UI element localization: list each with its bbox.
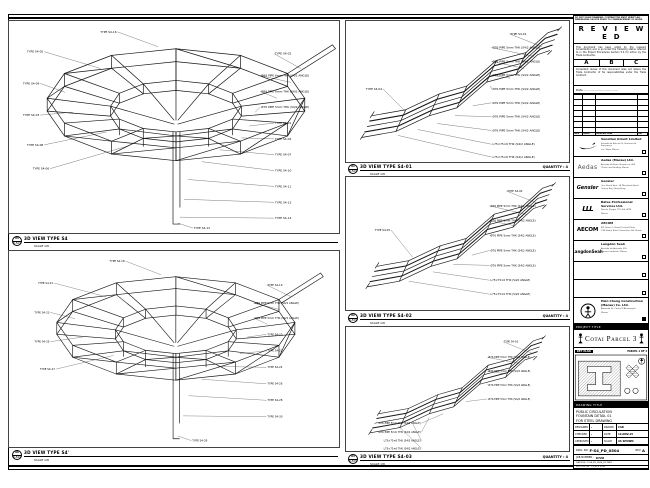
annotation-label: TYPE S4-04 <box>274 137 291 141</box>
view-a-title: 3D VIEW TYPE S4 <box>24 236 68 241</box>
view-e-titlebar: 03 S-501 3D VIEW TYPE S4-03 QUANTITY : 4… <box>348 454 570 466</box>
annotation-label: Ø76 PIPE 5mm THK (S4/2 ANGLE) <box>488 396 530 401</box>
contractor-checkbox-filled <box>642 317 646 321</box>
approved-label: APPROVED <box>574 438 590 445</box>
annotation-label: TYPE S4-27 <box>40 367 55 371</box>
leader-line <box>220 150 274 155</box>
title-block: DO NOT SCALE DRAWING. CONTRACTOR MUST VE… <box>573 15 649 469</box>
viewport-3d-type-s4-prime: TYPE S4-18TYPE S4-21TYPE S4-23TYPE S4-25… <box>8 250 340 448</box>
annotation-label: TYPE S4-14 <box>274 216 291 220</box>
annotation-label: Ø76 PIPE 5mm THK (S4/2 ANGLE) <box>493 86 541 91</box>
annotation-label: Ø76 PIPE 5mm THK (S4/2 ANGLE) <box>493 114 541 119</box>
leader-line <box>183 416 266 417</box>
rev-col-header: REV <box>574 133 583 135</box>
view-e-scale: SCALE 1/8 <box>360 462 570 466</box>
annotation-label: L75×75×6 THK (S4/2 ANGLE) <box>491 292 531 296</box>
annotation-label: TYPE S4-02 <box>274 52 291 56</box>
annotation-label: TYPE S4-10 <box>274 169 291 173</box>
annotation-label: Ø76 PIPE 5mm THK (S4/2 ANGLE) <box>379 429 421 434</box>
annotation-label: Ø76 PIPE 5mm THK (S4/2 ANGLE) <box>493 127 541 132</box>
company-address-1: 8/F Tower 2, Grand Central Plaza <box>601 227 647 230</box>
langdon-seah-logo-icon: LangdonSeah <box>574 249 603 254</box>
bubble-sheet-ref: S-501 <box>349 460 357 464</box>
int-col-header: INT <box>638 133 648 135</box>
view-c-quantity: QUANTITY : 4 <box>543 165 570 169</box>
gondola-icon <box>578 142 598 151</box>
leader-line <box>466 399 488 402</box>
general-note: DO NOT SCALE DRAWING. CONTRACTOR MUST VE… <box>574 16 648 24</box>
leader-line <box>473 103 492 106</box>
company-address-2: Macau Landmark, Macau <box>601 251 647 254</box>
annotation-label: Ø76 PIPE 5mm THK (S4/2 ANGLE) <box>255 315 299 320</box>
annotation-label: TYPE S4-26 <box>267 382 282 386</box>
company-checkbox <box>642 171 646 175</box>
job-number-label: JOB NUMBER : <box>576 456 594 459</box>
leader-line <box>184 199 274 202</box>
view-b-titlebar: 06 S-501 3D VIEW TYPE S4' SCALE 1/8 <box>12 450 338 462</box>
annotation-label: TYPE S4-05 <box>26 50 43 54</box>
leader-line <box>422 414 444 424</box>
leader-line <box>418 129 492 144</box>
reviewed-paragraph-2: Consultant review of this document does … <box>574 67 648 79</box>
annotation-label: TYPE S4-06 <box>32 167 49 171</box>
annotation-label: TYPE S4-16 <box>99 30 116 34</box>
annotation-label: L75×75×6 THK (S4/2 ANGLE) <box>491 278 531 282</box>
company-checkbox <box>642 273 646 277</box>
annotation-label: L75×75×6 THK (S4/2 ANGLE) <box>493 142 535 146</box>
annotation-label: Ø89 PIPE 6mm THK (S4/2 ANGLE) <box>255 300 299 305</box>
annotation-label: TYPE S4-11 <box>274 184 291 188</box>
leader-line <box>44 132 106 145</box>
company-name: Bates Professional Services Ltd. <box>601 201 647 208</box>
annotation-label: TYPE S4-30 <box>267 415 282 419</box>
drawn-label: DRAWN <box>603 424 617 431</box>
company-checkbox <box>642 234 646 238</box>
leader-line <box>178 223 193 228</box>
view-b-detail-bubble: 06 S-501 <box>12 450 22 460</box>
rev-value: A <box>642 448 646 453</box>
annotation-label: TYPE S4-13 <box>274 200 291 204</box>
bubble-sheet-ref: S-501 <box>13 456 21 460</box>
annotation-label: TYPE S4-19 <box>267 283 282 287</box>
bates-logo-icon: LLL <box>582 205 592 213</box>
leader-line <box>453 264 489 265</box>
leader-line <box>249 123 274 126</box>
drawing-title-section: DRAWING TITLE PUBLIC CIRCULATION FOUNTAI… <box>574 402 648 424</box>
status-c: C <box>623 60 648 66</box>
view-a-drawing: TYPE S4-16TYPE S4-05TYPE S4-09TYPE S4-03… <box>9 21 339 233</box>
leader-line <box>56 355 114 369</box>
parcel-note: PARCEL 1 OF 3 <box>627 350 647 353</box>
drawing-sheet: TYPE S4-16TYPE S4-05TYPE S4-09TYPE S4-03… <box>0 0 650 488</box>
checked-label: CHECKED <box>574 431 590 438</box>
designed-label: DESIGNED <box>574 424 590 431</box>
dwg-no-label: DWG. NO. <box>576 449 588 452</box>
company-address-2: China Law Building, Macau <box>601 167 647 170</box>
description-col-header: DESCRIPTION <box>596 133 638 135</box>
drawn-value: CAD <box>617 424 648 431</box>
view-b-title: 3D VIEW TYPE S4' <box>24 450 69 455</box>
bubble-sheet-ref: S-501 <box>13 242 21 246</box>
reviewed-stamp: R E V I E W E D This document has been n… <box>574 24 648 94</box>
leader-line <box>125 261 161 275</box>
annotation-label: TYPE S4-28 <box>267 398 282 402</box>
company-name: AECOM <box>601 222 647 226</box>
view-c-drawing: TYPE S4-01Ø76 PIPE 5mm THK (S4/2 ANGLE)Ø… <box>346 21 569 162</box>
leader-line <box>398 135 492 157</box>
contractor-address-1: Alameda Dr. Carlos D'Assumpção <box>601 308 647 311</box>
signoff-grid: DESIGNED - DRAWN CAD CHECKED - DATE 12-N… <box>574 424 648 446</box>
annotation-label: TYPE S4-04 <box>365 87 382 91</box>
annotation-label: TYPE S4-18 <box>110 259 125 263</box>
sheet-border-top-outer <box>8 14 649 15</box>
company-langdon-seah: LangdonSeah Langdon Seah Avenida da Amiz… <box>574 241 648 262</box>
emblem-icon <box>580 303 596 319</box>
company-address-1: Avenida da Praia Grande no. 409 <box>601 164 647 167</box>
view-d-scale: SCALE 1/8 <box>360 321 570 325</box>
reviewed-date-line: Date : .................................… <box>574 85 648 93</box>
company-address-2: Macau <box>601 213 647 216</box>
annotation-label: Ø76 PIPE 5mm THK (S4/2 ANGLE) <box>261 104 309 109</box>
viewport-3d-type-s4: TYPE S4-16TYPE S4-05TYPE S4-09TYPE S4-03… <box>8 20 340 234</box>
annotation-label: TYPE S4-24 <box>267 365 282 369</box>
company-name: Langdon Seah <box>601 243 647 247</box>
annotation-label: Ø76 PIPE 5mm THK (S4/2 ANGLE) <box>491 247 536 252</box>
drawing-number-row: DWG. NO. F-S4_PD_0504 REV. A <box>574 446 648 455</box>
sheet-border-bottom-outer <box>8 469 649 470</box>
annotation-label: Ø76 PIPE 5mm THK (S4/2 ANGLE) <box>491 262 536 267</box>
date-col-header: DATE <box>583 133 596 135</box>
job-number-value: 0720 <box>596 456 604 460</box>
status-b: B <box>599 60 624 66</box>
annotation-label: TYPE S4-03 <box>504 340 519 344</box>
company-address-2: 138 Shatin Rural Committee Rd, Shatin <box>601 230 647 233</box>
annotation-label: TYPE S4-07 <box>274 153 291 157</box>
company-aedas: Aedas Aedas (Macau) Ltd. Avenida da Prai… <box>574 157 648 178</box>
company-name: Venetian Orient Limited <box>601 138 647 142</box>
viewport-3d-type-s4-01: TYPE S4-01Ø76 PIPE 5mm THK (S4/2 ANGLE)Ø… <box>345 20 570 163</box>
key-plan-label: KEY PLAN <box>575 350 593 353</box>
annotation-label: TYPE S4-22 <box>267 349 282 353</box>
leader-line <box>240 351 267 354</box>
venetian-logo-icon <box>575 137 600 155</box>
company-address-1: Estrada da Baía de N. Senhora da Esperan… <box>601 143 647 148</box>
viewport-3d-type-s4-03: TYPE S4-03Ø76 PIPE 5mm THK (S4/2 ANGLE)Ø… <box>345 326 570 452</box>
annotation-label: TYPE S4-12 <box>193 226 210 230</box>
rev-label: REV. <box>636 449 642 452</box>
project-title-text: Cotai Parcel 3 <box>585 335 637 343</box>
drawing-title-line-3: FOR STEEL DRAWING <box>576 419 646 424</box>
company-checkbox <box>642 291 646 295</box>
reviewed-paragraph-1: This document has been noted by the rele… <box>574 44 648 59</box>
annotation-label: L75×75×6 THK (S4/2 ANGLE) <box>384 438 421 442</box>
revision-table-header: REV DATE DESCRIPTION INT <box>574 132 648 135</box>
key-plan-section: KEY PLAN PARCEL 1 OF 3 <box>574 348 648 402</box>
leader-line <box>491 86 492 89</box>
annotation-label: TYPE S4-25 <box>34 340 49 344</box>
contractor-address-2: Macau <box>601 312 647 315</box>
consultant-empty-cell-1 <box>574 262 648 280</box>
company-checkbox <box>642 192 646 196</box>
annotation-label: L75×75×6 THK (S4/2 ANGLE) <box>493 155 535 159</box>
ornament-icon <box>577 332 584 345</box>
annotation-label: TYPE S4-03 <box>22 113 39 117</box>
annotation-label: TYPE S4-09 <box>22 81 39 85</box>
leader-line <box>274 54 301 69</box>
leader-line <box>391 230 412 257</box>
date-value: 12-NOV-15 <box>617 431 648 438</box>
view-e-detail-bubble: 03 S-501 <box>348 454 358 464</box>
leader-line <box>201 379 266 384</box>
company-address-2: s/n, Taipa, Macau <box>601 149 647 152</box>
company-venetian: Venetian Orient Limited Estrada da Baía … <box>574 136 648 157</box>
leader-line <box>487 384 488 385</box>
reviewed-title: R E V I E W E D <box>574 24 648 44</box>
approved-value: - <box>590 438 603 445</box>
view-e-title: 3D VIEW TYPE S4-03 <box>360 454 412 459</box>
annotation-label: Ø76 PIPE 5mm THK (S4/2 ANGLE) <box>491 233 536 238</box>
view-a-titlebar: 05 S-501 3D VIEW TYPE S4 SCALE 1/8 <box>12 236 338 248</box>
annotation-label: TYPE S4-08 <box>26 143 43 147</box>
leader-line <box>383 89 406 112</box>
annotation-label: Ø76 PIPE 5mm THK (S4/2 ANGLE) <box>493 100 541 105</box>
leader-line <box>218 366 267 367</box>
view-e-drawing: TYPE S4-03Ø76 PIPE 5mm THK (S4/2 ANGLE)Ø… <box>346 327 569 451</box>
company-aecom: AECOM AECOM 8/F Tower 2, Grand Central P… <box>574 220 648 241</box>
company-checkbox <box>642 150 646 154</box>
leader-line <box>433 272 490 280</box>
view-a-detail-bubble: 05 S-501 <box>12 236 22 246</box>
view-d-detail-bubble: 02 S-501 <box>348 313 358 323</box>
annotation-label: TYPE S4-05 <box>374 228 391 232</box>
viewport-3d-type-s4-02: TYPE S4-02Ø76 PIPE 5mm THK (S4/2 ANGLE)Ø… <box>345 176 570 311</box>
bubble-sheet-ref: S-501 <box>349 319 357 323</box>
scale-label: SCALE <box>603 438 617 445</box>
view-c-scale: SCALE 1/8 <box>360 172 570 176</box>
leader-line <box>118 32 159 47</box>
status-a: A <box>574 60 599 66</box>
view-c-detail-bubble: 01 S-501 <box>348 164 358 174</box>
annotation-label: TYPE S4-21 <box>38 281 53 285</box>
annotation-label: Ø76 PIPE 5mm THK (S4/2 ANGLE) <box>493 58 541 63</box>
view-d-title: 3D VIEW TYPE S4-02 <box>360 313 412 318</box>
contractor-block: Hsin Chong Construction (Macau) Co. Ltd.… <box>574 298 648 324</box>
view-a-scale: SCALE 1/8 <box>24 244 338 248</box>
leader-line <box>180 217 274 218</box>
leader-line <box>409 281 490 294</box>
annotation-label: TYPE S4-29 <box>192 439 207 443</box>
project-title-banner: Cotai Parcel 3 <box>574 330 648 348</box>
company-gensler: Gensler Gensler One Island East, 18 West… <box>574 178 648 199</box>
leader-line <box>50 337 82 342</box>
plot-date-row: PLOTTED ON : 12 NOV 2015 <box>574 466 648 468</box>
contractor-name-2: (Macau) Co. Ltd. <box>601 304 647 308</box>
annotation-label: TYPE S4-23 <box>34 310 49 314</box>
annotation-label: L75×75×6 THK (S4/2 ANGLE) <box>384 446 421 450</box>
company-name: Gensler <box>601 180 647 184</box>
leader-line <box>398 426 421 449</box>
leader-line <box>50 146 128 169</box>
company-address-1: Avenida da Amizade 555 <box>601 248 647 251</box>
leader-line <box>472 250 490 255</box>
leader-line <box>189 396 267 401</box>
dwg-no-value: F-S4_PD_0504 <box>589 448 634 453</box>
annotation-label: Ø76 PIPE 5mm THK (S4/2 ANGLE) <box>493 45 541 50</box>
company-address-2: Quarry Bay, Hong Kong <box>601 188 647 191</box>
aedas-logo-icon: Aedas <box>578 164 598 171</box>
revision-table: REV DATE DESCRIPTION INT <box>574 94 648 136</box>
view-b-drawing: TYPE S4-18TYPE S4-21TYPE S4-23TYPE S4-25… <box>9 251 339 447</box>
annotation-label: TYPE S4-02 <box>506 189 523 193</box>
gensler-logo-icon: Gensler <box>577 185 599 191</box>
key-plan-map <box>574 354 648 401</box>
company-address-1: One Island East, 18 Westlands Road <box>601 185 647 188</box>
scale-value: AS SHOWN <box>617 438 648 445</box>
view-e-quantity: QUANTITY : 4 <box>543 455 570 459</box>
date-label: DATE <box>603 431 617 438</box>
leader-line <box>202 162 274 171</box>
leader-line <box>178 436 192 441</box>
leader-line <box>188 180 274 187</box>
leader-line <box>422 417 430 432</box>
leader-line <box>40 112 73 115</box>
sheet-border-top-inner <box>8 17 649 19</box>
view-d-drawing: TYPE S4-02Ø76 PIPE 5mm THK (S4/2 ANGLE)Ø… <box>346 177 569 310</box>
company-address-1: Rua de Xangai 175, Edf. ACM <box>601 209 647 212</box>
view-d-quantity: QUANTITY : 4 <box>543 314 570 318</box>
bubble-sheet-ref: S-501 <box>349 170 357 174</box>
leader-line <box>44 52 100 69</box>
annotation-label: TYPE S4-20 <box>267 332 282 336</box>
contractor-logo-icon <box>575 299 600 322</box>
aecom-logo-icon: AECOM <box>577 227 598 233</box>
company-checkbox <box>642 255 646 259</box>
ornament-icon <box>638 332 645 345</box>
view-c-title: 3D VIEW TYPE S4-01 <box>360 164 412 169</box>
company-bates: LLL Bates Professional Services Ltd. Rua… <box>574 199 648 220</box>
annotation-label: TYPE S4-01 <box>274 121 291 125</box>
status-row: A B C <box>574 59 648 67</box>
annotation-label: Ø89 PIPE 6mm THK (S4/2 ANGLE) <box>261 88 309 93</box>
leader-line <box>455 116 491 117</box>
annotation-label: TYPE S4-01 <box>509 32 526 36</box>
annotation-label: Ø76 PIPE 5mm THK (S4/2 ANGLE) <box>488 382 530 387</box>
leader-line <box>437 124 491 131</box>
consultant-empty-cell-2 <box>574 280 648 298</box>
designed-value: - <box>590 424 603 431</box>
leader-line <box>255 107 260 112</box>
company-checkbox <box>642 213 646 217</box>
company-name: Aedas (Macau) Ltd. <box>601 159 647 163</box>
annotation-label: Ø89 PIPE 6mm THK (S4/2 ANGLE) <box>261 72 309 77</box>
view-b-scale: SCALE 1/8 <box>24 458 338 462</box>
checked-value: - <box>590 431 603 438</box>
view-c-titlebar: 01 S-501 3D VIEW TYPE S4-01 QUANTITY : 4… <box>348 164 570 176</box>
annotation-label: Ø76 PIPE 5mm THK (S4/2 ANGLE) <box>493 72 541 77</box>
view-d-titlebar: 02 S-501 3D VIEW TYPE S4-02 QUANTITY : 4… <box>348 313 570 325</box>
